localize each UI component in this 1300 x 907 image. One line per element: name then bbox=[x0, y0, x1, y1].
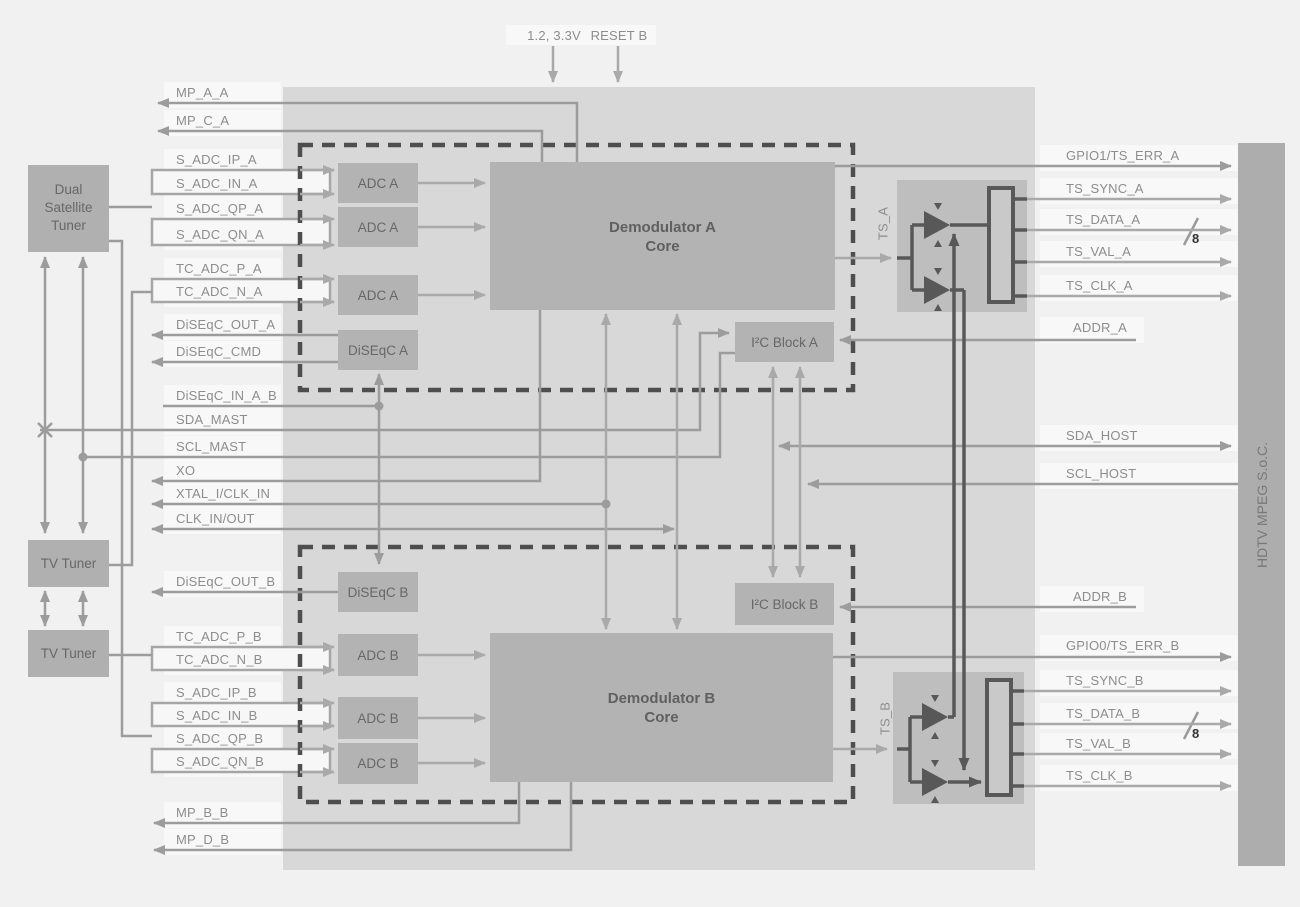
adc-b-label: ADC B bbox=[338, 755, 418, 773]
signal-label: S_ADC_QN_A bbox=[176, 226, 264, 243]
signal-label: TS_VAL_A bbox=[1066, 243, 1131, 260]
ts-a-register bbox=[989, 188, 1013, 302]
signal-label: TS_CLK_A bbox=[1066, 277, 1133, 294]
signal-label: SDA_HOST bbox=[1066, 427, 1138, 444]
block-diagram: 1.2, 3.3V RESET B MP_A_A MP_C_A S_ADC_IP… bbox=[0, 0, 1300, 907]
ts-b-register bbox=[987, 680, 1011, 795]
i2c-block-a-label: I²C Block A bbox=[735, 334, 834, 352]
signal-label: MP_C_A bbox=[176, 112, 229, 129]
signal-label: DiSEqC_CMD bbox=[176, 343, 261, 360]
adc-a-label: ADC A bbox=[338, 219, 418, 237]
tv-tuner-label: TV Tuner bbox=[28, 555, 109, 573]
signal-label: SCL_MAST bbox=[176, 438, 246, 455]
wire-tv1-feed bbox=[109, 292, 152, 565]
adc-b-label: ADC B bbox=[338, 647, 418, 665]
signal-label: S_ADC_IP_A bbox=[176, 151, 257, 168]
adc-a-label: ADC A bbox=[338, 287, 418, 305]
ts-b-label: TS_B bbox=[877, 687, 894, 751]
tuner-blocks bbox=[28, 165, 109, 677]
signal-label: SDA_MAST bbox=[176, 411, 248, 428]
signal-label: S_ADC_IP_B bbox=[176, 684, 257, 701]
signal-label: S_ADC_IN_A bbox=[176, 175, 257, 192]
adc-b-label: ADC B bbox=[338, 710, 418, 728]
demod-b-core-label: Demodulator B Core bbox=[490, 689, 833, 727]
tv-tuner-label: TV Tuner bbox=[28, 645, 109, 663]
signal-label: TS_DATA_A bbox=[1066, 211, 1140, 228]
bus-width-label: 8 bbox=[1192, 726, 1199, 741]
signal-label: MP_D_B bbox=[176, 831, 229, 848]
signal-label: S_ADC_IN_B bbox=[176, 707, 257, 724]
demod-a-core-label: Demodulator A Core bbox=[490, 218, 835, 256]
signal-label: XO bbox=[176, 462, 195, 479]
bus-width-label: 8 bbox=[1192, 231, 1199, 246]
signal-label: TS_SYNC_B bbox=[1066, 672, 1144, 689]
signal-label: TS_CLK_B bbox=[1066, 767, 1133, 784]
signal-label: DiSEqC_OUT_B bbox=[176, 573, 275, 590]
signal-label: TC_ADC_P_A bbox=[176, 260, 262, 277]
ts-a-label: TS_A bbox=[875, 192, 892, 256]
signal-label: TS_SYNC_A bbox=[1066, 180, 1144, 197]
signal-label: S_ADC_QP_A bbox=[176, 200, 263, 217]
dual-satellite-tuner-label: Dual Satellite Tuner bbox=[28, 181, 109, 235]
signal-label: ADDR_A bbox=[1073, 319, 1127, 336]
signal-label: DiSEqC_IN_A_B bbox=[176, 387, 277, 404]
diseqc-b-label: DiSEqC B bbox=[338, 584, 418, 602]
signal-label: DiSEqC_OUT_A bbox=[176, 316, 275, 333]
signal-label: MP_A_A bbox=[176, 84, 229, 101]
reset-label: RESET B bbox=[569, 27, 669, 44]
signal-label: MP_B_B bbox=[176, 804, 229, 821]
adc-a-label: ADC A bbox=[338, 175, 418, 193]
signal-label: TC_ADC_N_B bbox=[176, 651, 263, 668]
signal-label: TS_VAL_B bbox=[1066, 735, 1131, 752]
soc-label: HDTV MPEG S.o.C. bbox=[1253, 405, 1271, 605]
signal-label: S_ADC_QP_B bbox=[176, 730, 263, 747]
signal-label: CLK_IN/OUT bbox=[176, 510, 255, 527]
i2c-block-b-label: I²C Block B bbox=[735, 596, 834, 614]
diseqc-a-label: DiSEqC A bbox=[338, 342, 418, 360]
wire-sat-tuner-b-feed bbox=[109, 241, 152, 736]
signal-label: S_ADC_QN_B bbox=[176, 753, 264, 770]
signal-label: SCL_HOST bbox=[1066, 465, 1136, 482]
signal-label: TC_ADC_N_A bbox=[176, 283, 263, 300]
signal-label: GPIO1/TS_ERR_A bbox=[1066, 147, 1179, 164]
signal-label: TS_DATA_B bbox=[1066, 705, 1140, 722]
signal-label: GPIO0/TS_ERR_B bbox=[1066, 637, 1179, 654]
signal-label: ADDR_B bbox=[1073, 588, 1127, 605]
signal-label: TC_ADC_P_B bbox=[176, 628, 262, 645]
signal-label: XTAL_I/CLK_IN bbox=[176, 485, 270, 502]
